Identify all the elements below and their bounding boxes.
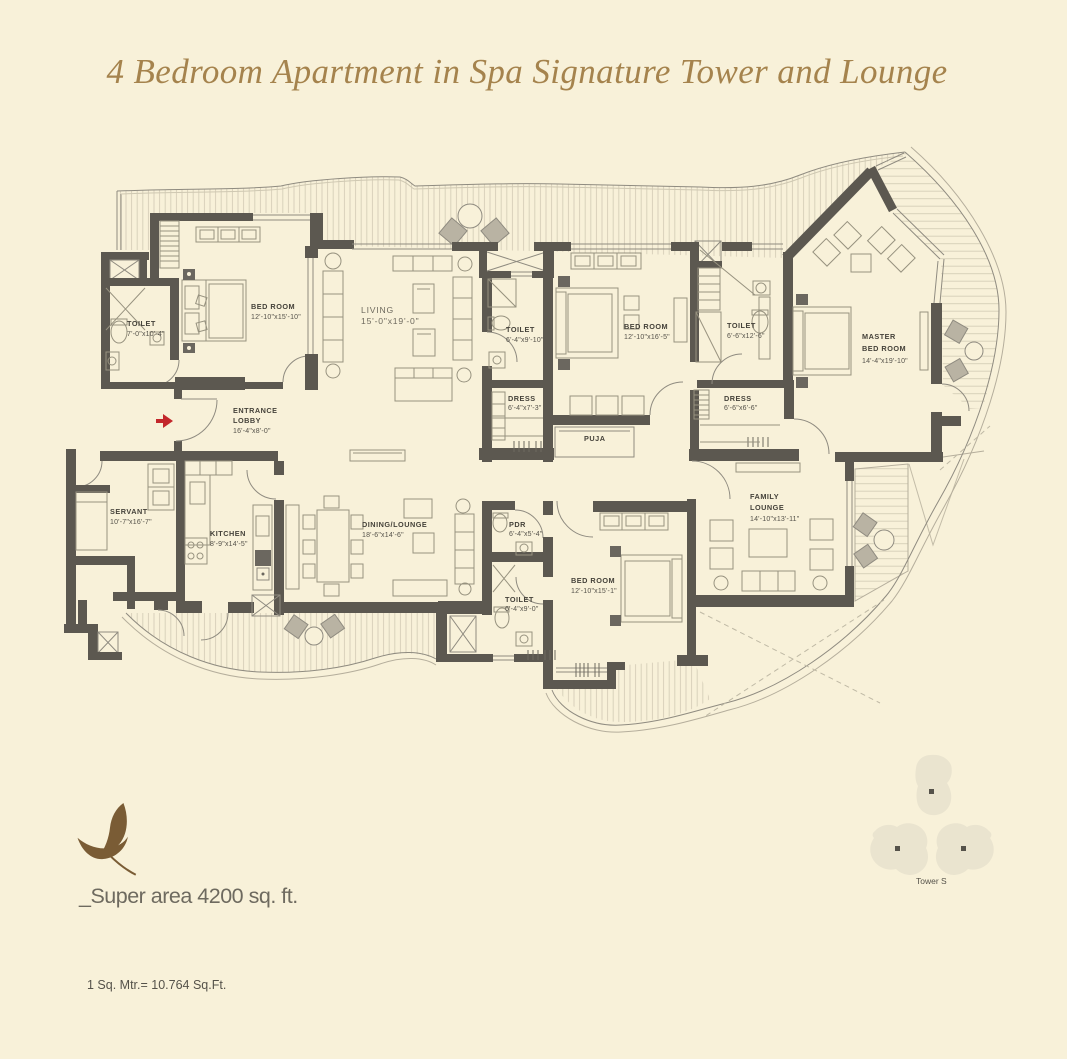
svg-text:MASTER: MASTER <box>862 332 896 341</box>
svg-text:8'-9"x14'-5": 8'-9"x14'-5" <box>210 541 248 548</box>
svg-text:TOILET: TOILET <box>505 595 534 604</box>
svg-text:ENTRANCE: ENTRANCE <box>233 406 278 415</box>
svg-text:DRESS: DRESS <box>724 394 752 403</box>
svg-text:14'-4"x19'-10": 14'-4"x19'-10" <box>862 358 908 365</box>
svg-text:BED ROOM: BED ROOM <box>251 302 295 311</box>
svg-text:FAMILY: FAMILY <box>750 492 779 501</box>
svg-text:18'-6"x14'-6": 18'-6"x14'-6" <box>362 532 404 539</box>
svg-text:DINING/LOUNGE: DINING/LOUNGE <box>362 520 427 529</box>
svg-text:PUJA: PUJA <box>584 434 606 443</box>
svg-text:6'-4"x7'-3": 6'-4"x7'-3" <box>508 405 542 412</box>
svg-text:LOBBY: LOBBY <box>233 416 261 425</box>
svg-text:6'-4"x9'-10": 6'-4"x9'-10" <box>506 337 544 344</box>
svg-text:TOILET: TOILET <box>506 325 535 334</box>
svg-text:6'-6"x6'-6": 6'-6"x6'-6" <box>724 405 758 412</box>
svg-text:14'-10"x13'-11": 14'-10"x13'-11" <box>750 516 800 523</box>
svg-text:BED ROOM: BED ROOM <box>624 322 668 331</box>
svg-text:DRESS: DRESS <box>508 394 536 403</box>
svg-text:TOILET: TOILET <box>727 321 756 330</box>
svg-text:KITCHEN: KITCHEN <box>210 529 246 538</box>
svg-text:TOILET: TOILET <box>127 319 156 328</box>
svg-text:PDR: PDR <box>509 520 526 529</box>
svg-text:10'-7"x16'-7": 10'-7"x16'-7" <box>110 519 152 526</box>
svg-text:4 Bedroom Apartment in Spa Sig: 4 Bedroom Apartment in Spa Signature Tow… <box>106 52 947 91</box>
svg-text:SERVANT: SERVANT <box>110 507 148 516</box>
svg-text:7'-0"x10'-4": 7'-0"x10'-4" <box>127 331 165 338</box>
svg-text:1 Sq. Mtr.= 10.764 Sq.Ft.: 1 Sq. Mtr.= 10.764 Sq.Ft. <box>87 978 226 992</box>
svg-text:6'-4"x9'-0": 6'-4"x9'-0" <box>505 606 539 613</box>
svg-text:12'-10"x15'-1": 12'-10"x15'-1" <box>571 588 617 595</box>
svg-text:BED ROOM: BED ROOM <box>862 344 906 353</box>
svg-text:15'-0"x19'-0": 15'-0"x19'-0" <box>361 316 419 326</box>
svg-text:16'-4"x8'-0": 16'-4"x8'-0" <box>233 428 271 435</box>
svg-text:12'-10"x15'-10": 12'-10"x15'-10" <box>251 314 301 321</box>
svg-text:_Super area 4200 sq. ft.: _Super area 4200 sq. ft. <box>78 884 298 908</box>
svg-text:LOUNGE: LOUNGE <box>750 503 784 512</box>
svg-text:BED ROOM: BED ROOM <box>571 576 615 585</box>
svg-text:12'-10"x16'-5": 12'-10"x16'-5" <box>624 334 670 341</box>
svg-text:6'-4"x5'-4": 6'-4"x5'-4" <box>509 531 543 538</box>
svg-text:LIVING: LIVING <box>361 305 394 315</box>
svg-text:Tower S: Tower S <box>916 876 947 886</box>
svg-text:6'-6"x12'-6": 6'-6"x12'-6" <box>727 333 765 340</box>
